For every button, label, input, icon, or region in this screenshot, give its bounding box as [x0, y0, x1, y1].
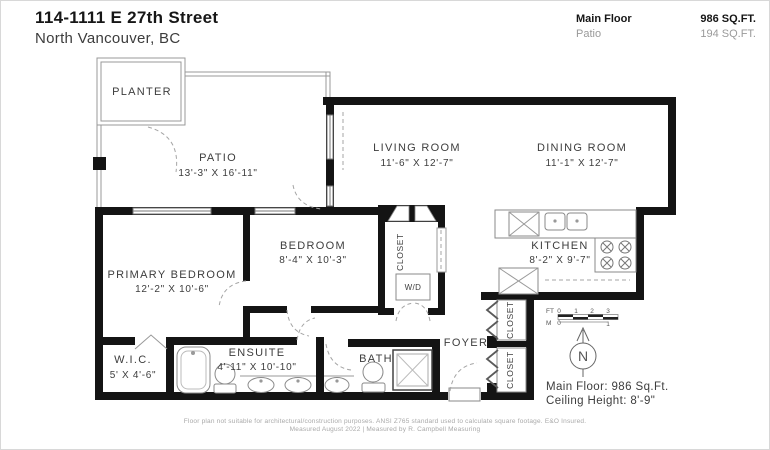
room-label-foyer: FOYER [444, 337, 488, 349]
room-label-kitchen: KITCHEN [531, 240, 588, 252]
room-label-patio: PATIO [199, 152, 237, 164]
room-dims-ensuite: 4'-11" X 10'-10" [217, 362, 296, 373]
room-label-dining: DINING ROOM [537, 142, 627, 154]
closet-label: CLOSET [505, 351, 515, 389]
floor-plan: PLANTER PATIO 13'-3" X 16'-11" LIVING RO… [0, 0, 770, 450]
washer-dryer-label: W/D [405, 283, 422, 292]
wic-bifold-door [135, 335, 167, 349]
scale-tick: 0 [557, 320, 561, 327]
bifold-door [487, 350, 498, 388]
room-label-wic: W.I.C. [114, 354, 152, 366]
summary-ceiling: Ceiling Height: 8'-9" [546, 395, 655, 407]
bath-vanity [324, 376, 354, 393]
room-label-planter: PLANTER [112, 86, 172, 98]
fridge [499, 268, 538, 294]
plan-summary: Main Floor: 986 Sq.Ft. Ceiling Height: 8… [546, 381, 669, 407]
room-dims-patio: 13'-3" X 16'-11" [178, 168, 257, 179]
entry-door [449, 363, 480, 401]
disclaimer-line2: Measured August 2022 | Measured by R. Ca… [0, 426, 770, 434]
summary-area: Main Floor: 986 Sq.Ft. [546, 381, 669, 393]
bifold-door [396, 303, 430, 321]
room-dims-living: 11'-6" X 12'-7" [381, 158, 454, 169]
room-dims-dining: 11'-1" X 12'-7" [546, 158, 619, 169]
scale-tick: 2 [590, 308, 594, 315]
scale-tick: 1 [574, 308, 578, 315]
toilet [362, 362, 385, 392]
window [255, 208, 295, 214]
compass-north-letter: N [578, 348, 588, 364]
primary-bedroom-door [219, 281, 246, 307]
bath-door [326, 344, 351, 370]
room-dims-bedroom: 8'-4" X 10'-3" [279, 255, 346, 266]
ensuite-vanity [240, 376, 316, 393]
scale-m-label: M [546, 320, 551, 327]
room-label-bedroom: BEDROOM [280, 240, 346, 252]
scale-tick: 0 [557, 308, 561, 315]
north-arrow-icon: N [570, 328, 596, 377]
bifold-door [487, 301, 498, 339]
closet-label: CLOSET [505, 301, 515, 339]
ensuite-door [297, 318, 315, 340]
shower [393, 350, 432, 390]
room-label-ensuite: ENSUITE [229, 347, 286, 359]
room-dims-kitchen: 8'-2" X 9'-7" [529, 255, 590, 266]
scale-tick: 3 [606, 308, 610, 315]
bathtub [177, 347, 210, 393]
window [327, 186, 333, 206]
scale-bar: FT 0 1 2 3 M 0 1 [546, 308, 618, 328]
room-dims-primary-bedroom: 12'-2" X 10'-6" [135, 284, 209, 295]
window [133, 208, 211, 214]
room-dims-wic: 5' X 4'-6" [110, 370, 157, 381]
room-label-living: LIVING ROOM [373, 142, 461, 154]
room-label-bath: BATH [359, 353, 393, 365]
disclaimer: Floor plan not suitable for architectura… [0, 418, 770, 434]
window [327, 115, 333, 159]
range-hood-icon [509, 212, 539, 236]
bedroom-door [287, 310, 309, 336]
closet-door [437, 228, 446, 272]
patio-gate [148, 127, 177, 172]
patio-door-swing [293, 185, 321, 209]
windows [133, 112, 343, 214]
closet-label: CLOSET [395, 233, 405, 271]
scale-ft-label: FT [546, 308, 554, 315]
room-label-primary-bedroom: PRIMARY BEDROOM [107, 269, 236, 281]
disclaimer-line1: Floor plan not suitable for architectura… [0, 418, 770, 426]
